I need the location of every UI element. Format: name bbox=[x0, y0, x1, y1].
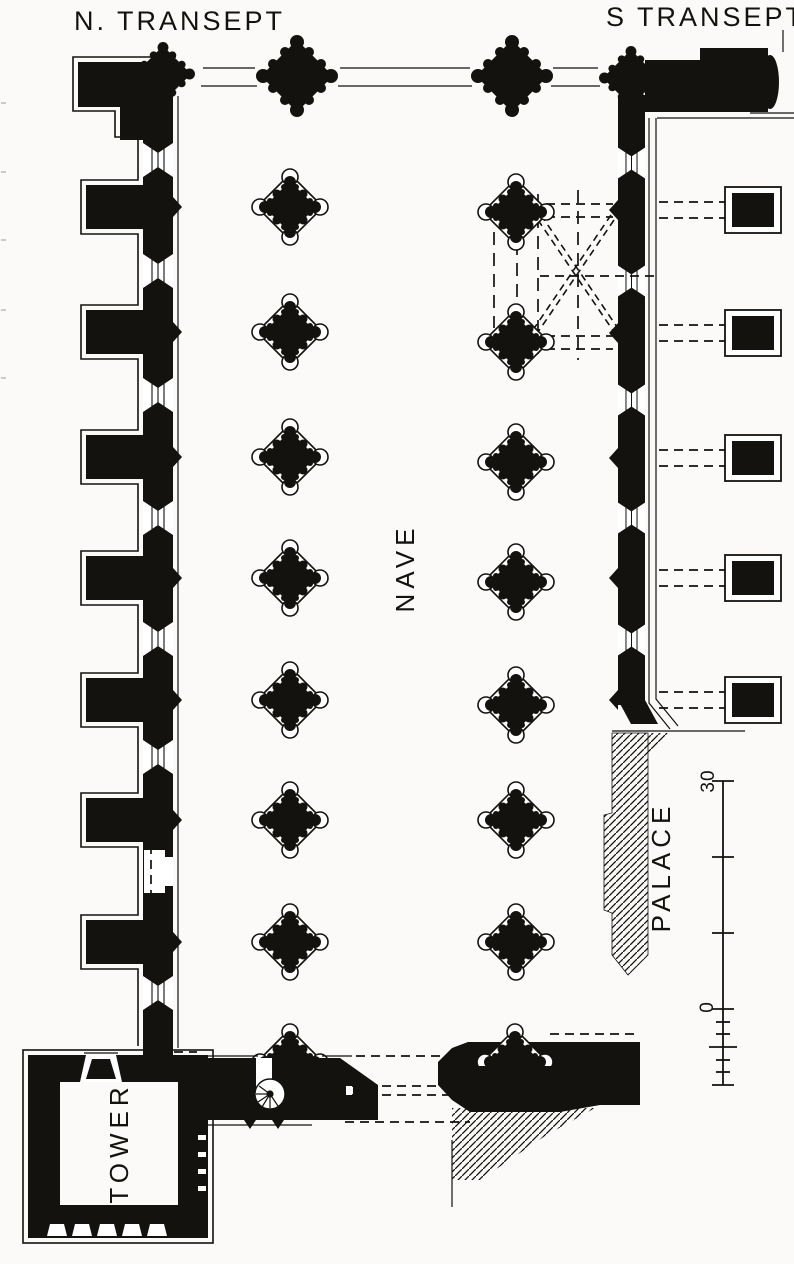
arcade-pier bbox=[478, 174, 554, 250]
tower-label: TOWER bbox=[104, 1082, 134, 1203]
arcade-pier bbox=[252, 419, 328, 495]
buttress bbox=[86, 920, 143, 964]
north-wall bbox=[73, 57, 182, 1082]
north-doorway bbox=[144, 845, 173, 898]
buttress bbox=[86, 556, 143, 600]
buttress bbox=[86, 678, 143, 722]
scan-artifacts bbox=[1, 103, 6, 378]
arcade-pier bbox=[478, 544, 554, 620]
south-wall bbox=[609, 30, 794, 729]
scale-max-label: 30 bbox=[698, 769, 719, 792]
arcade-pier bbox=[252, 169, 328, 245]
arcade-pier bbox=[478, 424, 554, 500]
palace-wall-hatch bbox=[604, 733, 648, 975]
crossing-pier-north bbox=[256, 35, 338, 117]
cloister-piers bbox=[659, 187, 781, 723]
square-pier bbox=[725, 555, 781, 601]
buttress bbox=[86, 435, 143, 479]
crossing-pier-south bbox=[471, 35, 553, 117]
square-pier bbox=[725, 187, 781, 233]
square-pier bbox=[725, 677, 781, 723]
scale-bar: 30 0 bbox=[697, 769, 737, 1085]
nave-arcade-north bbox=[252, 169, 328, 980]
square-pier bbox=[725, 310, 781, 356]
south-transept-label: S TRANSEPT bbox=[606, 2, 794, 32]
arcade-pier bbox=[478, 782, 554, 858]
palace-label: PALACE bbox=[646, 802, 676, 933]
floor-plan-page: N. TRANSEPT S TRANSEPT bbox=[0, 0, 794, 1264]
nave-label: NAVE bbox=[390, 524, 420, 613]
buttress bbox=[86, 798, 143, 842]
arcade-pier bbox=[252, 662, 328, 738]
arcade-pier bbox=[252, 782, 328, 858]
square-pier bbox=[725, 435, 781, 481]
scale-zero-label: 0 bbox=[697, 1001, 718, 1013]
floor-plan-drawing: N. TRANSEPT S TRANSEPT bbox=[0, 0, 794, 1264]
arcade-pier bbox=[252, 540, 328, 616]
buttress bbox=[86, 310, 143, 354]
nave-arcade-south bbox=[478, 174, 554, 980]
ruined-wall-hatch bbox=[452, 1108, 595, 1180]
tower: TOWER bbox=[23, 1050, 213, 1243]
north-transept-label: N. TRANSEPT bbox=[74, 6, 285, 36]
arcade-pier bbox=[478, 904, 554, 980]
arcade-pier bbox=[478, 667, 554, 743]
west-end bbox=[174, 1024, 640, 1207]
arcade-pier bbox=[252, 904, 328, 980]
crossing bbox=[131, 35, 663, 117]
arcade-pier bbox=[252, 294, 328, 370]
buttress bbox=[86, 185, 143, 229]
